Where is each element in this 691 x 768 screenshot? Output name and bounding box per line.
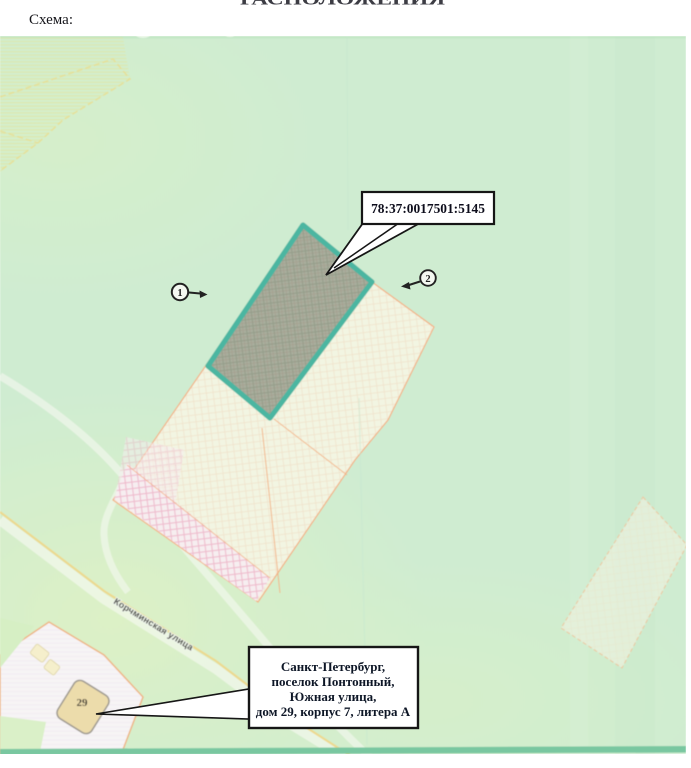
svg-text:дом 29, корпус 7, литера А: дом 29, корпус 7, литера А <box>256 704 411 719</box>
svg-text:1: 1 <box>177 288 182 299</box>
svg-text:РАСПОЛОЖЕНИЯ: РАСПОЛОЖЕНИЯ <box>240 0 445 9</box>
svg-text:Санкт-Петербург,: Санкт-Петербург, <box>281 659 385 674</box>
svg-text:29: 29 <box>77 697 89 709</box>
svg-text:Схема:: Схема: <box>29 12 73 28</box>
svg-text:поселок Понтонный,: поселок Понтонный, <box>272 674 395 689</box>
svg-text:78:37:0017501:5145: 78:37:0017501:5145 <box>371 201 485 216</box>
svg-text:Южная улица,: Южная улица, <box>290 689 377 704</box>
svg-text:2: 2 <box>425 274 430 285</box>
